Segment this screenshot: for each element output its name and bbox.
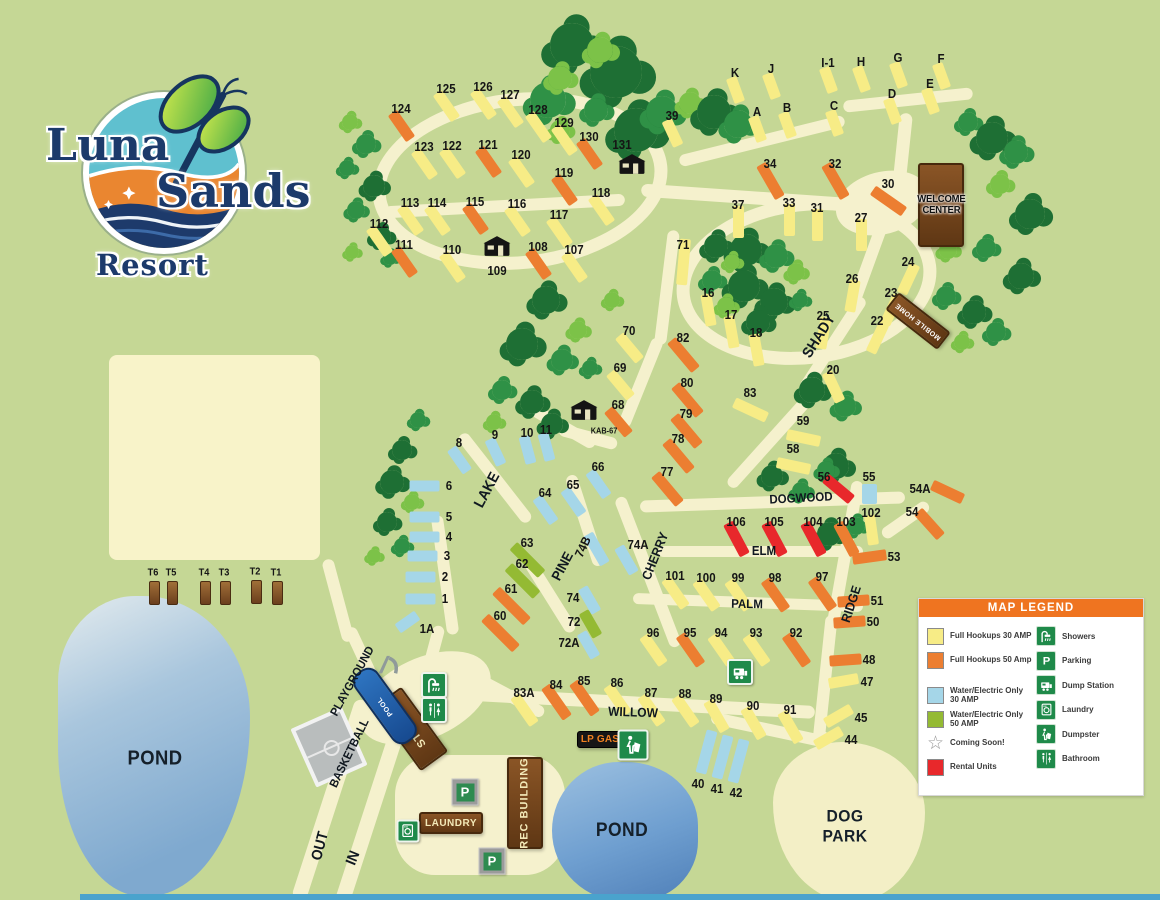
tree-icon xyxy=(363,175,385,197)
road-label-palm: PALM xyxy=(731,597,763,612)
event-field xyxy=(109,355,320,560)
laundry-icon xyxy=(397,820,420,843)
legend-item-label: Laundry xyxy=(1062,705,1144,714)
site-label: F xyxy=(937,52,944,66)
tree-icon xyxy=(347,201,365,219)
logo-word-sands: Sands xyxy=(156,164,311,218)
site-label: 104 xyxy=(803,515,822,529)
site-label: 91 xyxy=(784,703,797,717)
site-marker xyxy=(394,611,420,634)
site-marker xyxy=(818,66,837,94)
tree-icon xyxy=(704,234,728,258)
site-label: 50 xyxy=(867,615,880,629)
legend-item: Full Hookups 50 Amp xyxy=(927,648,1032,672)
site-label: 85 xyxy=(578,674,591,688)
site-label: 27 xyxy=(855,211,868,225)
site-marker xyxy=(405,594,435,605)
site-label: 111 xyxy=(395,238,413,252)
site-label: 69 xyxy=(614,361,627,375)
site-label: 56 xyxy=(818,470,831,484)
tree-icon xyxy=(799,377,825,403)
dumpster-icon xyxy=(618,730,649,761)
parking-sign: P xyxy=(479,848,506,875)
tree-icon xyxy=(345,245,359,259)
site-label: 74 xyxy=(567,591,580,605)
site-label: T4 xyxy=(199,568,210,579)
site-label: C xyxy=(830,99,838,113)
site-label: 110 xyxy=(443,243,462,257)
site-label: 66 xyxy=(592,460,605,474)
site-label: 77 xyxy=(661,465,674,479)
rec-building: REC BUILDING xyxy=(507,757,543,849)
site-label: 45 xyxy=(855,711,868,725)
site-marker xyxy=(888,61,907,89)
site-label: E xyxy=(926,77,934,91)
site-label: 108 xyxy=(528,240,547,254)
site-marker xyxy=(761,72,780,100)
site-label: 83A xyxy=(513,686,534,700)
site-label: 9 xyxy=(492,428,498,442)
tree-icon xyxy=(377,512,397,532)
legend-item: Dumpster xyxy=(1036,722,1144,747)
rec-building-label: REC BUILDING xyxy=(519,757,531,848)
site-marker xyxy=(200,581,211,605)
site-label: 115 xyxy=(466,195,485,209)
site-label: 6 xyxy=(446,479,452,493)
site-marker xyxy=(272,581,283,605)
legend-item: Water/Electric Only 50 AMP xyxy=(927,707,1032,731)
site-label: 96 xyxy=(647,626,660,640)
site-label: 102 xyxy=(861,506,880,520)
site-label: 55 xyxy=(863,470,876,484)
site-label: 92 xyxy=(790,626,803,640)
legend-item-label: Bathroom xyxy=(1062,754,1144,763)
site-label: 101 xyxy=(665,569,684,583)
road-label-pine: PINE xyxy=(548,549,576,583)
tree-icon xyxy=(787,263,805,281)
site-label: 82 xyxy=(677,331,690,345)
site-label: 47 xyxy=(861,675,874,689)
site-label: 94 xyxy=(715,626,728,640)
legend-item: ☆Coming Soon! xyxy=(927,731,1032,755)
lp-gas: LP GAS xyxy=(577,731,623,748)
site-label: 127 xyxy=(500,88,519,102)
cabin-icon xyxy=(619,154,646,180)
site-marker xyxy=(407,551,437,562)
site-label: 88 xyxy=(679,687,692,701)
tree-icon xyxy=(1008,263,1034,289)
site-label: 31 xyxy=(811,201,824,215)
tree-icon xyxy=(962,300,986,324)
tree-icon xyxy=(724,110,752,138)
tree-icon xyxy=(724,254,740,270)
tree-icon xyxy=(792,292,808,308)
site-label: 20 xyxy=(827,363,840,377)
site-label: 65 xyxy=(567,478,580,492)
site-label: I-1 xyxy=(821,56,834,70)
site-label: 5 xyxy=(446,510,452,524)
legend-item: Rental Units xyxy=(927,755,1032,779)
site-marker xyxy=(405,572,435,583)
tree-icon xyxy=(584,98,608,122)
tree-icon xyxy=(1004,140,1028,164)
site-marker xyxy=(929,480,964,504)
site-label: 17 xyxy=(725,308,738,322)
tree-icon xyxy=(404,494,420,510)
bathroom-icon xyxy=(1036,749,1056,769)
parking-sign: P xyxy=(452,779,479,806)
legend-item-label: Water/Electric Only 50 AMP xyxy=(950,710,1032,728)
legend-swatch xyxy=(927,652,944,669)
legend-title: MAP LEGEND xyxy=(919,599,1143,617)
site-label: 68 xyxy=(612,398,625,412)
lp-gas-label: LP GAS xyxy=(581,734,619,745)
tree-icon xyxy=(339,160,355,176)
site-label: 107 xyxy=(564,243,583,257)
site-label: 128 xyxy=(528,103,547,117)
site-label: 1 xyxy=(442,592,448,606)
legend-item-label: Dumpster xyxy=(1062,730,1144,739)
site-label: 87 xyxy=(645,686,658,700)
cabin-icon xyxy=(571,400,598,426)
site-label: 119 xyxy=(555,166,574,180)
site-label: 4 xyxy=(446,530,452,544)
site-label: 8 xyxy=(456,436,462,450)
site-label: 113 xyxy=(401,196,420,210)
site-label: A xyxy=(753,105,761,119)
site-label: 60 xyxy=(494,609,507,623)
site-label: 99 xyxy=(732,571,745,585)
shower-icon xyxy=(421,672,447,698)
site-label: H xyxy=(857,55,865,69)
site-marker xyxy=(851,65,870,93)
bathroom-icon xyxy=(421,697,447,723)
site-marker xyxy=(409,481,439,492)
welcome-center-label: WELCOME CENTER xyxy=(917,194,965,216)
site-label: 62 xyxy=(516,557,529,571)
tree-icon xyxy=(936,286,956,306)
legend-item: Water/Electric Only 30 AMP xyxy=(927,683,1032,707)
site-marker xyxy=(931,62,950,90)
road-label-willow: WILLOW xyxy=(608,704,658,721)
site-marker xyxy=(149,581,160,605)
site-label: 51 xyxy=(871,594,884,608)
tree-icon xyxy=(587,37,613,63)
legend-swatch xyxy=(927,687,944,704)
site-label: 89 xyxy=(710,692,723,706)
site-label: 100 xyxy=(696,571,715,585)
site-marker xyxy=(829,653,862,666)
site-label: 90 xyxy=(747,699,760,713)
site-label: 41 xyxy=(711,782,724,796)
site-marker xyxy=(827,673,858,689)
logo-word-luna: Luna xyxy=(46,120,169,171)
site-marker xyxy=(409,532,439,543)
tree-icon xyxy=(492,380,512,400)
site-label: 118 xyxy=(592,186,611,200)
pond-left xyxy=(58,596,250,896)
tree-icon xyxy=(1015,199,1045,229)
legend-item-label: Dump Station xyxy=(1062,681,1144,690)
legend-swatch xyxy=(927,759,944,776)
site-label: 97 xyxy=(816,570,829,584)
site-label: 117 xyxy=(550,208,569,222)
site-label: 30 xyxy=(882,177,895,191)
resort-logo: Luna Sands Resort xyxy=(38,62,318,302)
cabin-icon xyxy=(484,236,511,262)
site-label: 53 xyxy=(888,550,901,564)
tree-icon xyxy=(954,334,970,350)
site-label: 64 xyxy=(539,486,552,500)
site-label: 105 xyxy=(764,515,783,529)
tree-icon xyxy=(569,321,587,339)
site-label: J xyxy=(768,62,774,76)
resort-map: PONDPONDDOG PARK 12412512612712812913012… xyxy=(0,0,1160,900)
site-label: 58 xyxy=(787,442,800,456)
tree-icon xyxy=(986,322,1006,342)
site-label: 130 xyxy=(579,130,598,144)
site-label: 95 xyxy=(684,626,697,640)
site-label: 16 xyxy=(702,286,715,300)
site-label: 32 xyxy=(829,157,842,171)
site-label: T1 xyxy=(271,568,282,579)
logo-word-resort: Resort xyxy=(96,248,209,282)
site-label: 37 xyxy=(732,198,745,212)
site-label: 123 xyxy=(414,140,433,154)
legend-item-label: Coming Soon! xyxy=(950,738,1032,747)
site-label: 121 xyxy=(478,138,497,152)
site-marker xyxy=(251,580,262,604)
tree-icon xyxy=(551,349,573,371)
site-label: 125 xyxy=(436,82,455,96)
legend-item-label: Parking xyxy=(1062,656,1144,665)
site-label: 40 xyxy=(692,777,705,791)
site-marker xyxy=(220,581,231,605)
site-marker xyxy=(409,512,439,523)
site-label: 59 xyxy=(797,414,810,428)
site-label: T2 xyxy=(250,567,261,578)
site-label: 126 xyxy=(473,80,492,94)
legend-item-label: Showers xyxy=(1062,632,1144,641)
site-label: 114 xyxy=(428,196,447,210)
site-label: 63 xyxy=(521,536,534,550)
map-legend: MAP LEGEND Full Hookups 30 AMPFull Hooku… xyxy=(918,598,1144,796)
site-label: 26 xyxy=(846,272,859,286)
legend-item-label: Rental Units xyxy=(950,762,1032,771)
legend-facilities: ShowersPParkingDump StationLaundryDumpst… xyxy=(1036,624,1144,779)
site-label: 74A xyxy=(627,538,648,552)
tree-icon xyxy=(990,174,1010,194)
site-label: 106 xyxy=(726,515,745,529)
tree-icon xyxy=(506,328,538,360)
site-label: 54 xyxy=(906,505,919,519)
mobile-home-label: MOBILE HOME xyxy=(894,301,942,341)
site-label: 18 xyxy=(750,326,763,340)
site-marker xyxy=(167,581,178,605)
cabin-label: 131 xyxy=(612,138,631,152)
parking-icon: P xyxy=(456,783,474,801)
parking-icon: P xyxy=(1036,651,1056,671)
site-label: D xyxy=(888,87,896,101)
site-label: 10 xyxy=(521,426,534,440)
tree-icon xyxy=(764,244,788,268)
site-label: 80 xyxy=(681,376,694,390)
tree-icon xyxy=(410,412,426,428)
site-label: 71 xyxy=(677,238,690,252)
legend-swatch xyxy=(927,711,944,728)
site-label: 122 xyxy=(442,139,461,153)
site-label: 79 xyxy=(680,407,693,421)
site-label: 61 xyxy=(505,582,518,596)
dumpster-icon xyxy=(1036,724,1056,744)
site-label: 33 xyxy=(783,196,796,210)
tree-icon xyxy=(976,238,996,258)
shower-icon xyxy=(1036,626,1056,646)
road-label-elm: ELM xyxy=(752,544,776,558)
pond-center-label: POND xyxy=(596,820,648,842)
tree-icon xyxy=(958,112,978,132)
site-label: 24 xyxy=(902,255,915,269)
site-marker xyxy=(725,76,744,104)
site-label: 72A xyxy=(558,636,579,650)
tree-icon xyxy=(604,292,620,308)
site-label: T3 xyxy=(219,568,230,579)
site-label: 48 xyxy=(863,653,876,667)
site-label: 120 xyxy=(511,148,530,162)
legend-item-label: Full Hookups 50 Amp xyxy=(950,655,1032,664)
site-marker xyxy=(862,484,877,504)
legend-item: Full Hookups 30 AMP xyxy=(927,624,1032,648)
laundry-building-label: LAUNDRY xyxy=(425,818,477,829)
parking-icon: P xyxy=(483,852,501,870)
site-label: 103 xyxy=(836,515,855,529)
playground-slide-icon xyxy=(374,650,402,678)
tree-icon xyxy=(520,390,544,414)
dump-icon xyxy=(1036,675,1056,695)
cabin-label: KAB-67 xyxy=(591,427,618,436)
site-label: B xyxy=(783,101,791,115)
tree-icon xyxy=(367,549,381,563)
legend-swatch xyxy=(927,628,944,645)
welcome-center: WELCOME CENTER xyxy=(918,163,964,247)
site-label: 112 xyxy=(370,217,389,231)
site-label: 129 xyxy=(554,116,573,130)
site-label: 22 xyxy=(871,314,884,328)
pond-left-label: POND xyxy=(127,748,182,771)
pool-label: POOL xyxy=(376,695,395,717)
dog-park-label: DOG PARK xyxy=(822,806,867,845)
tree-icon xyxy=(582,360,598,376)
laundry-building: LAUNDRY xyxy=(419,812,483,834)
legend-item-label: Full Hookups 30 AMP xyxy=(950,631,1032,640)
legend-site-types: Full Hookups 30 AMPFull Hookups 50 AmpWa… xyxy=(927,624,1032,779)
water-edge-strip xyxy=(80,894,1160,900)
legend-item: Laundry xyxy=(1036,698,1144,723)
site-label: 11 xyxy=(540,423,552,437)
site-label: K xyxy=(731,66,739,80)
site-label: 93 xyxy=(750,626,763,640)
laundry-icon xyxy=(1036,700,1056,720)
site-label: G xyxy=(894,51,903,65)
site-label: T5 xyxy=(166,568,177,579)
site-label: 34 xyxy=(764,157,777,171)
tree-icon xyxy=(392,440,412,460)
site-label: 1A xyxy=(420,622,435,636)
site-label: T6 xyxy=(148,568,159,579)
coming-soon-star-icon: ☆ xyxy=(927,736,944,751)
site-label: 78 xyxy=(672,432,685,446)
site-label: 39 xyxy=(666,109,679,123)
site-label: 98 xyxy=(769,571,782,585)
site-label: 124 xyxy=(391,102,410,116)
tree-icon xyxy=(342,114,358,130)
tree-icon xyxy=(548,66,572,90)
site-label: 86 xyxy=(611,676,624,690)
site-label: 83 xyxy=(744,386,757,400)
tree-icon xyxy=(728,270,760,302)
svg-text:P: P xyxy=(1042,656,1050,668)
tree-icon xyxy=(356,134,376,154)
tree-icon xyxy=(380,470,404,494)
site-label: 72 xyxy=(568,615,581,629)
legend-item: Bathroom xyxy=(1036,747,1144,772)
legend-item: Dump Station xyxy=(1036,673,1144,698)
tree-icon xyxy=(532,286,560,314)
site-label: 54A xyxy=(909,482,930,496)
site-label: 44 xyxy=(845,733,858,747)
site-label: 70 xyxy=(623,324,636,338)
site-label: 116 xyxy=(508,197,527,211)
dump-icon xyxy=(727,659,753,685)
legend-item: PParking xyxy=(1036,649,1144,674)
site-label: 84 xyxy=(550,678,563,692)
site-label: 3 xyxy=(444,549,450,563)
site-marker xyxy=(731,397,768,422)
legend-item: Showers xyxy=(1036,624,1144,649)
site-label: 42 xyxy=(730,786,743,800)
cabin-label: 109 xyxy=(487,264,506,278)
site-label: 2 xyxy=(442,570,448,584)
legend-item-label: Water/Electric Only 30 AMP xyxy=(950,686,1032,704)
